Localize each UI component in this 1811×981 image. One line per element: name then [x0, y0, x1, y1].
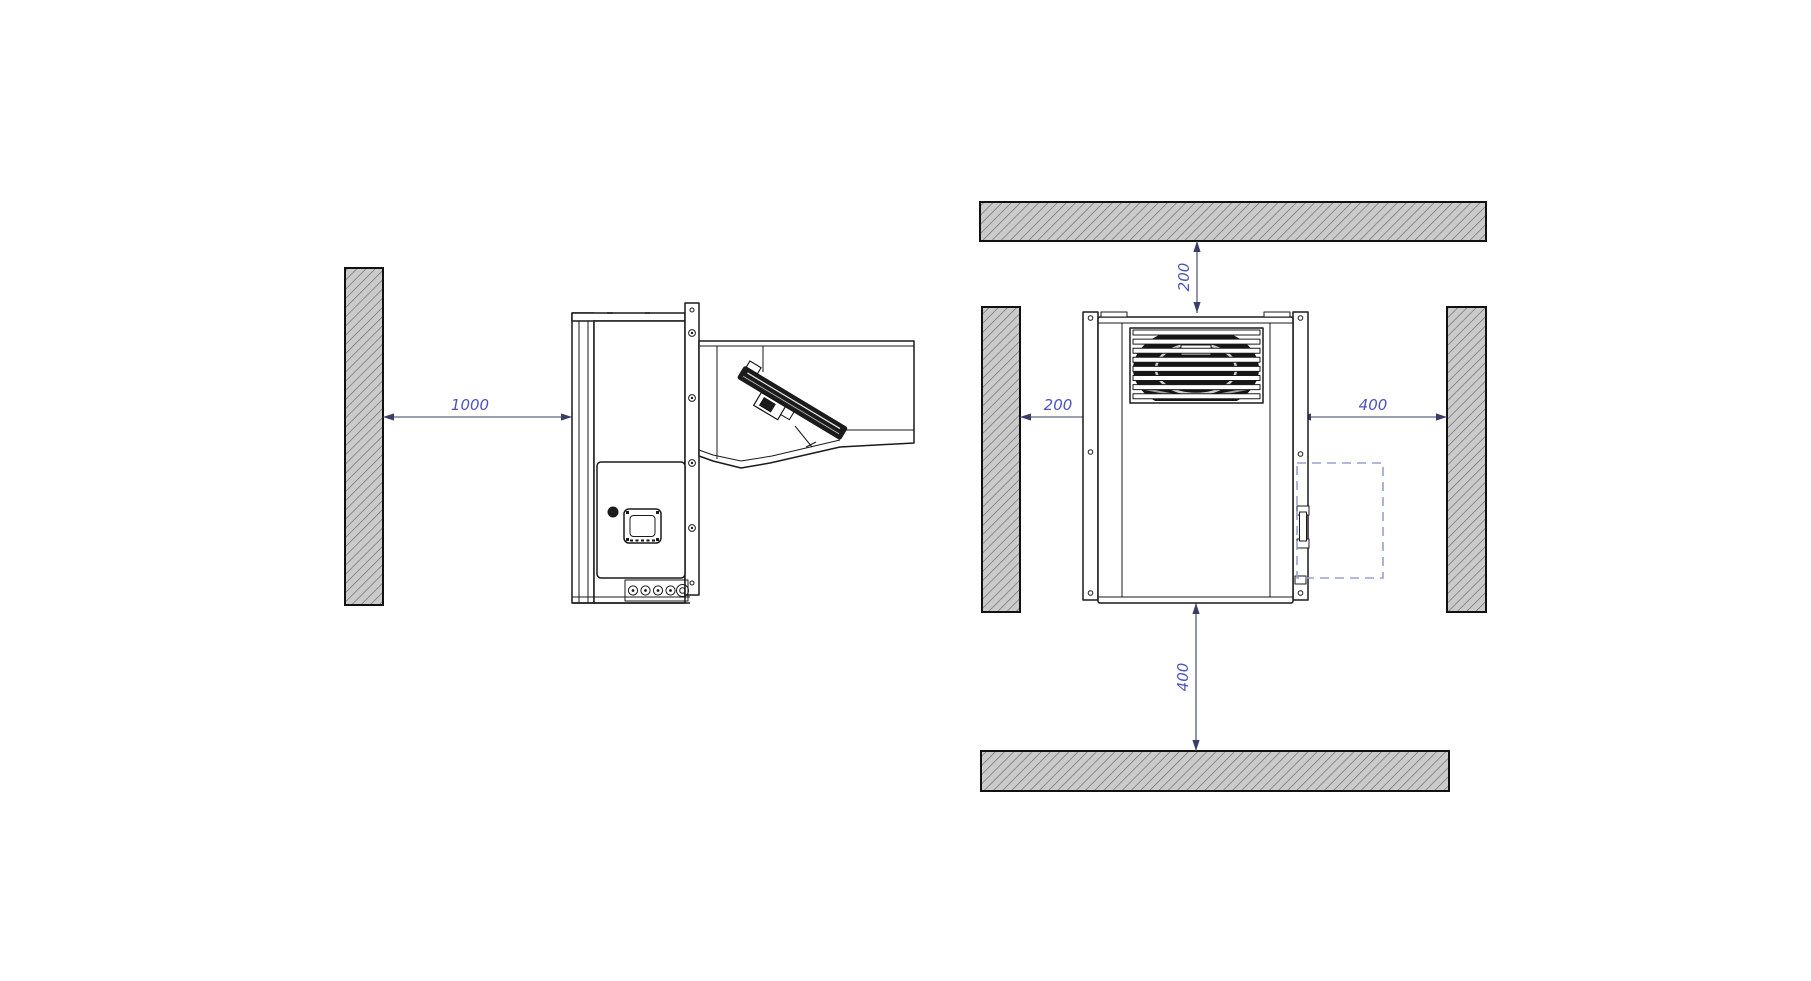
right-clearance-value: 400 [1359, 396, 1388, 414]
monoblock-front-view [1083, 312, 1309, 603]
monoblock-side-view [572, 303, 914, 603]
arrow-left-icon [383, 413, 394, 420]
front-view: 200 200 400 400 [980, 202, 1486, 791]
front-dimension-right-400: 400 [1300, 396, 1447, 421]
arrow-right-icon [1436, 413, 1447, 420]
arrow-down-icon [1193, 302, 1200, 313]
side-wall-clearance-value: 1000 [451, 396, 489, 414]
installation-clearance-drawing: 1000 [0, 0, 1811, 981]
arrow-down-icon [1192, 740, 1199, 751]
front-view-right-wall [1447, 307, 1486, 612]
side-view-wall [345, 268, 383, 605]
front-view-bottom-wall [981, 751, 1449, 791]
side-view: 1000 [345, 268, 914, 605]
top-clearance-value: 200 [1175, 263, 1193, 292]
evaporator-duct [699, 341, 914, 468]
service-clearance-area [1297, 463, 1383, 578]
front-view-top-wall [980, 202, 1486, 241]
top-cap [572, 313, 685, 321]
left-mounting-bracket [1083, 312, 1098, 600]
condenser-fan-grille [1130, 327, 1263, 411]
arrow-left-icon [1020, 413, 1031, 420]
side-view-dimension-1000: 1000 [383, 396, 572, 421]
front-dimension-bottom-400: 400 [1174, 603, 1200, 751]
front-dimension-top-200: 200 [1175, 241, 1201, 313]
display-plate [624, 509, 661, 543]
left-clearance-value: 200 [1044, 396, 1073, 414]
mounting-flange [685, 303, 699, 595]
front-view-left-wall [982, 307, 1020, 612]
back-panel [572, 313, 594, 603]
power-button [608, 507, 619, 518]
arrow-right-icon [561, 413, 572, 420]
arrow-up-icon [1193, 241, 1200, 252]
bottom-clearance-value: 400 [1174, 663, 1192, 692]
right-mounting-bracket [1293, 312, 1308, 600]
arrow-up-icon [1192, 603, 1199, 614]
drawing-svg: 1000 [0, 0, 1811, 981]
